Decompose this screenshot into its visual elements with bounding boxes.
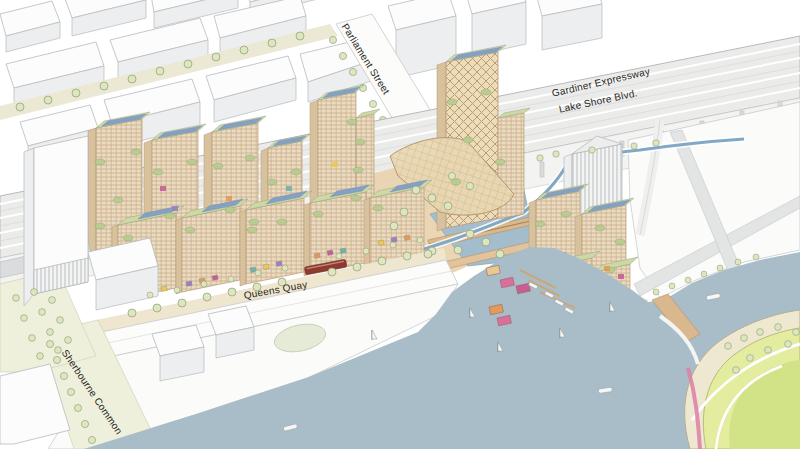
white-box-building bbox=[152, 325, 204, 381]
rendering-scene bbox=[0, 0, 800, 449]
waterfront-masterplan-rendering: Parliament Street Gardiner Expressway La… bbox=[0, 0, 800, 449]
white-slab-tower bbox=[24, 136, 88, 306]
